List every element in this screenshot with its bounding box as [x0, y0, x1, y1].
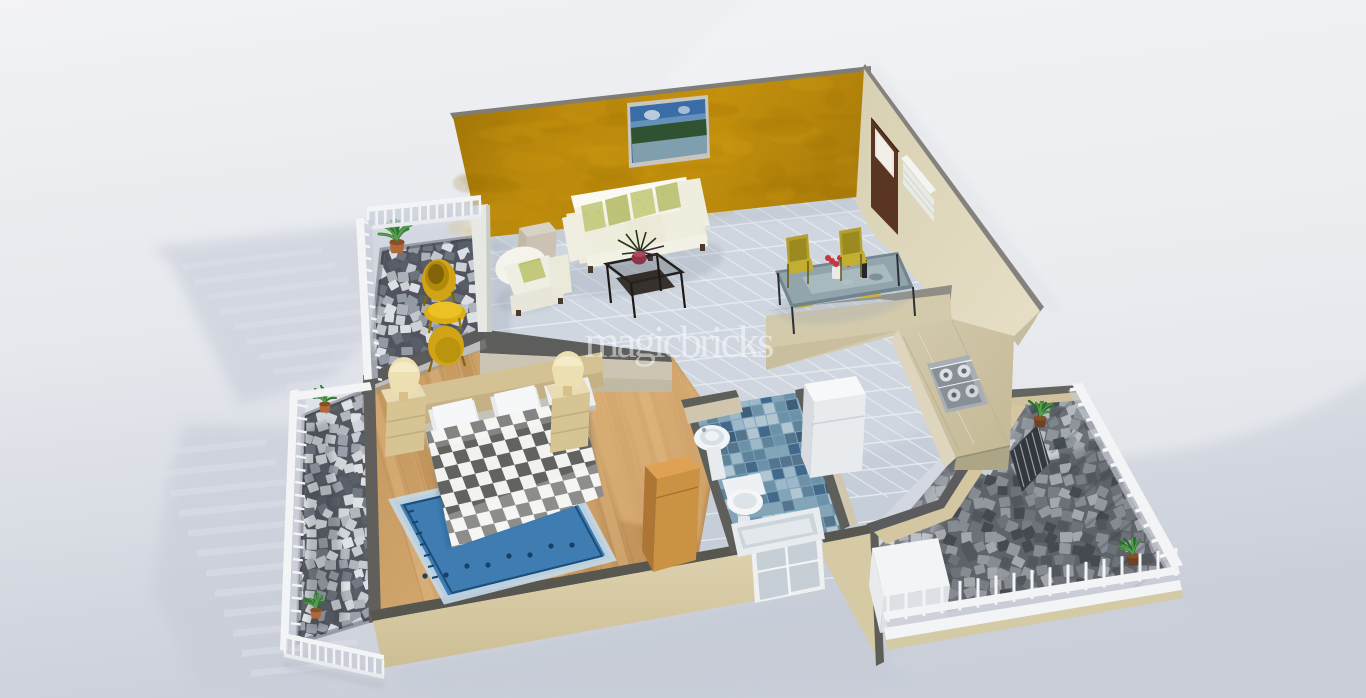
svg-text:magicbricks: magicbricks: [585, 317, 773, 367]
